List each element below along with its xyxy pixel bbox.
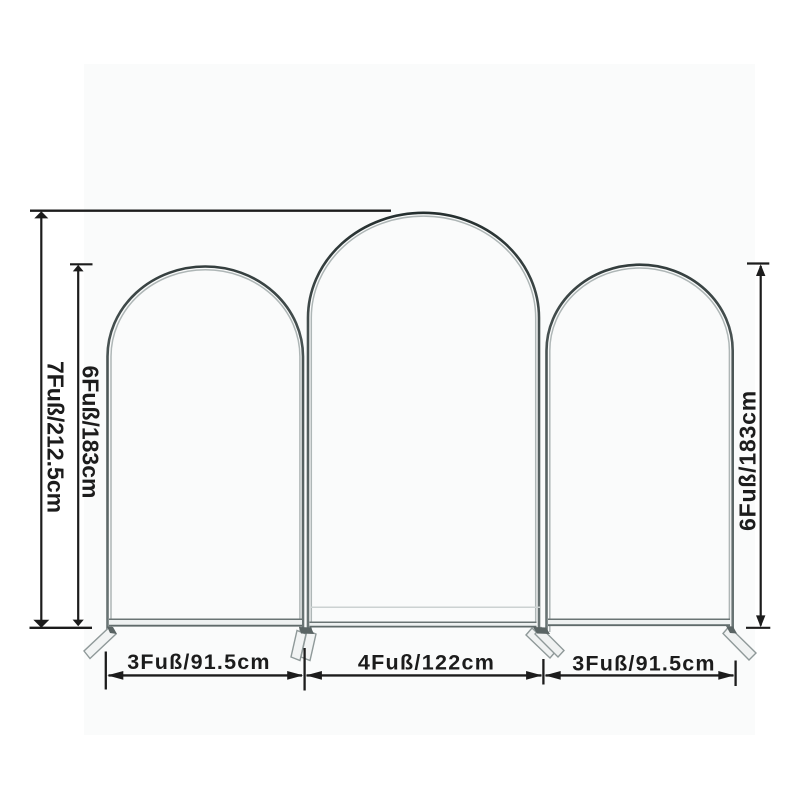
svg-text:4Fuß/122cm: 4Fuß/122cm [358, 651, 495, 675]
svg-text:3Fuß/91.5cm: 3Fuß/91.5cm [127, 650, 270, 674]
svg-text:6Fuß/183cm: 6Fuß/183cm [78, 366, 104, 499]
svg-text:7Fuß/212.5cm: 7Fuß/212.5cm [43, 361, 69, 513]
svg-text:6Fuß/183cm: 6Fuß/183cm [735, 390, 761, 531]
svg-text:3Fuß/91.5cm: 3Fuß/91.5cm [572, 652, 715, 676]
